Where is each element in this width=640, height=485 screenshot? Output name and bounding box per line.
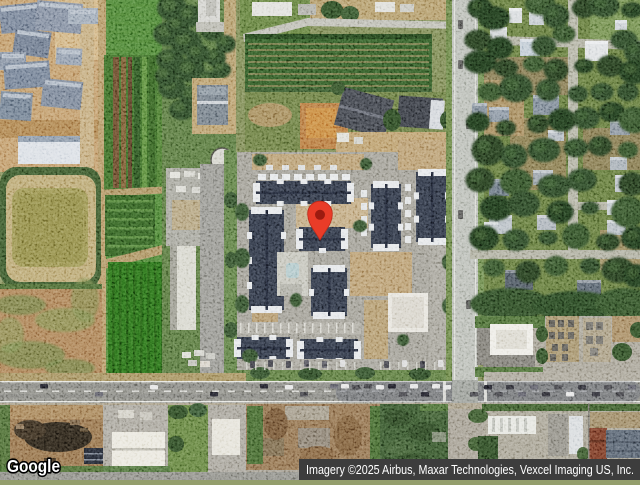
svg-text:Imagery ©2025 Airbus, Maxar Te: Imagery ©2025 Airbus, Maxar Technologies… (306, 462, 634, 477)
svg-text:Google: Google (7, 456, 60, 476)
